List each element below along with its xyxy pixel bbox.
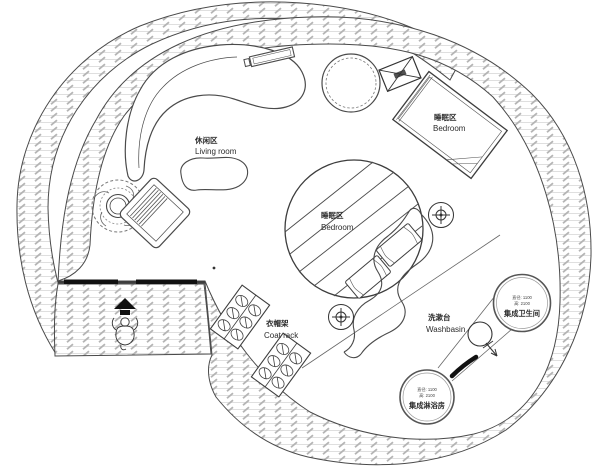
washbasin-label-en: Washbasin (426, 325, 465, 334)
living-room-label-en: Living room (195, 147, 237, 156)
shower-pod-name: 集成淋浴房 (408, 401, 445, 410)
washbasin-label-zh: 洗漱台 (428, 312, 451, 322)
shower-pod-diameter: 直径: 1100 (417, 386, 437, 392)
upper-bedroom-label-zh: 睡眠区 (434, 112, 457, 122)
living-room-label-zh: 休闲区 (194, 135, 218, 145)
round-table (322, 54, 380, 112)
bathroom-pod-height: 高: 2100 (514, 300, 531, 307)
coat-rack-label-zh: 衣帽架 (266, 318, 289, 328)
reference-dot (213, 267, 216, 270)
bathroom-pod-name: 集成卫生间 (503, 309, 540, 318)
crosshair-marker (329, 305, 354, 330)
shower-pod-height: 高: 2100 (419, 392, 436, 399)
upper-bedroom-label-en: Bedroom (433, 124, 466, 133)
shower-pod: 直径: 1100 高: 2100 集成淋浴房 (400, 370, 454, 424)
bathroom-pod: 直径: 1100 高: 2100 集成卫生间 (494, 275, 551, 332)
crosshair-marker (429, 203, 454, 228)
floor-plan-page: 直径: 1100 高: 2100 集成卫生间 直径: 1100 高: 2100 … (0, 0, 611, 473)
floor-plan-drawing: 直径: 1100 高: 2100 集成卫生间 直径: 1100 高: 2100 … (0, 0, 611, 473)
coat-rack-label-en: Coat rack (264, 331, 299, 340)
coffee-table (181, 157, 248, 190)
center-bedroom-label-zh: 睡眠区 (321, 210, 344, 220)
entry-deck (54, 284, 211, 356)
bathroom-pod-diameter: 直径: 1100 (512, 294, 532, 300)
center-bedroom-label-en: Bedroom (321, 223, 354, 232)
